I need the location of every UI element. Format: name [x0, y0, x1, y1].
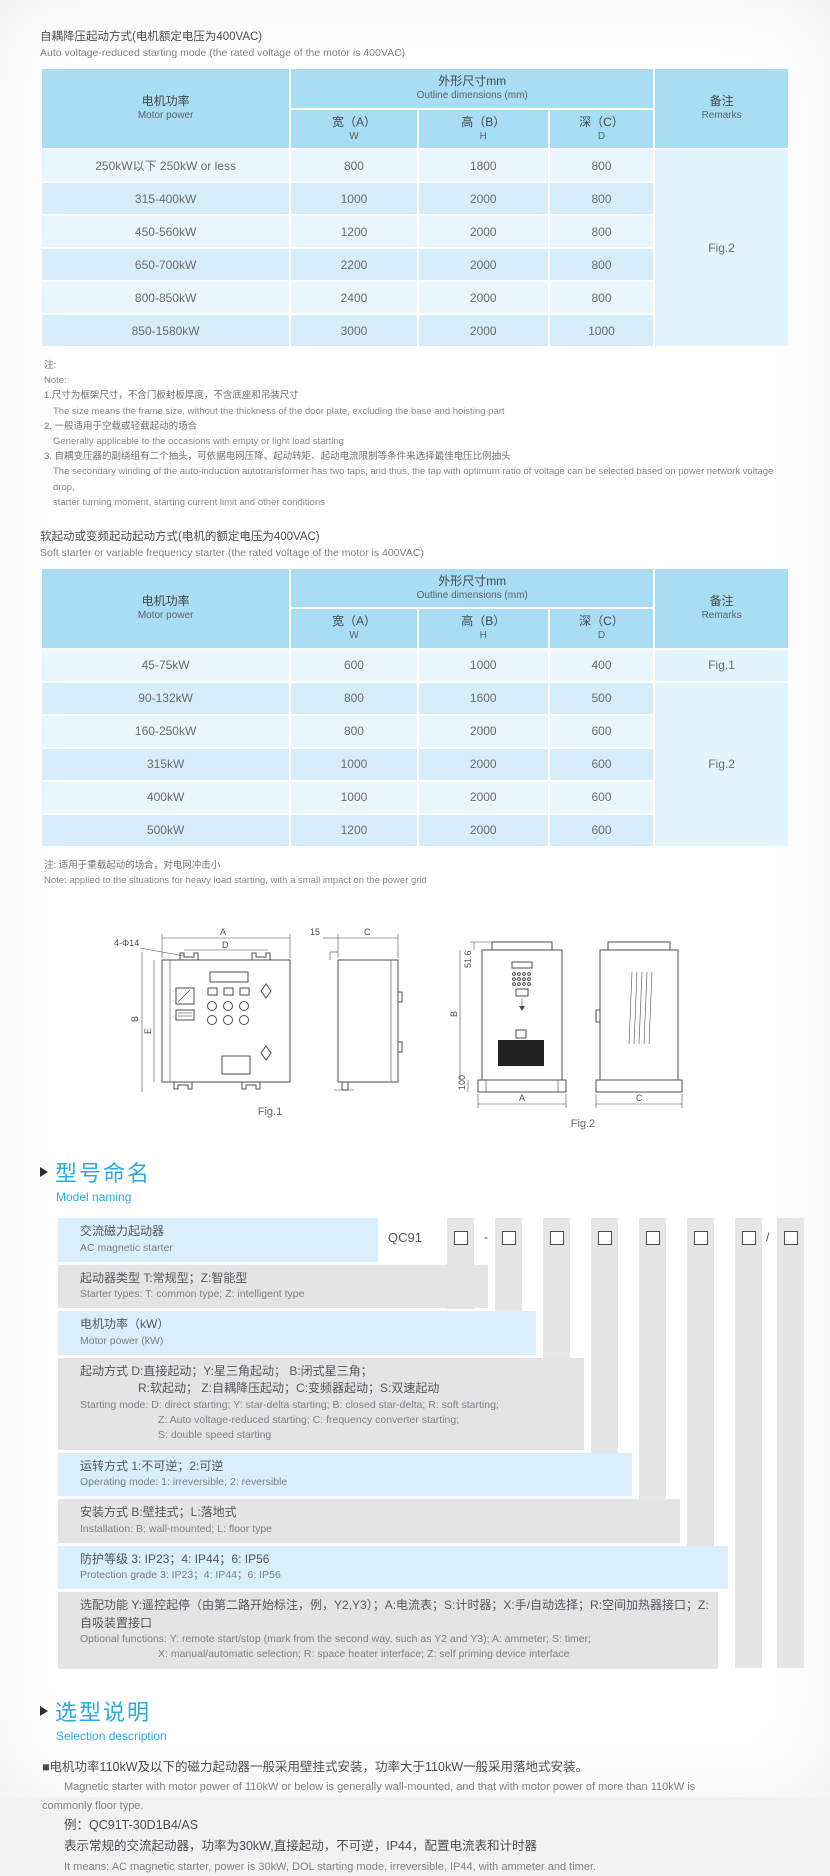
model-code-box — [550, 1231, 564, 1245]
selection-title-zh: 选型说明 — [55, 1695, 151, 1727]
model-naming-table: QC91 - / 交流磁力起动器 AC magnetic starter 起动器… — [58, 1218, 804, 1668]
width-cell: 1200 — [291, 815, 416, 846]
model-row-starter-type: 起动器类型 T:常规型；Z:智能型 Starter types: T: comm… — [58, 1265, 488, 1309]
model-code-strip — [687, 1218, 714, 1589]
selection-paragraph-en: commonly floor type. — [42, 1797, 790, 1816]
power-cell: 500kW — [42, 815, 289, 846]
note-line: The secondary winding of the auto-induct… — [44, 464, 790, 494]
depth-cell: 800 — [550, 216, 653, 247]
power-cell: 650-700kW — [42, 249, 289, 280]
auto-dimensions-table: 电机功率 Motor power 外形尺寸mm Outline dimensio… — [40, 67, 790, 348]
depth-cell: 500 — [550, 683, 653, 714]
depth-header: 深（C） D — [550, 110, 653, 149]
power-cell: 45-75kW — [42, 650, 289, 681]
table-row: 250kW以下 250kW or less 800 1800 800 Fig.2 — [42, 150, 788, 181]
selection-heading: 选型说明 — [40, 1695, 790, 1727]
auto-section-title-zh: 自耦降压起动方式(电机额定电压为400VAC) — [40, 28, 790, 44]
width-cell: 3000 — [291, 315, 416, 346]
model-row-optional-functions: 选配功能 Y:遥控起停（由第二路开始标注，例，Y2,Y3）；A:电流表；S:计时… — [58, 1592, 718, 1668]
model-code-box — [742, 1231, 756, 1245]
width-cell: 800 — [291, 683, 416, 714]
power-cell: 850-1580kW — [42, 315, 289, 346]
depth-cell: 600 — [550, 749, 653, 780]
note-label-zh: 注: — [44, 358, 790, 373]
model-naming-heading: 型号命名 — [40, 1156, 790, 1188]
depth-cell: 600 — [550, 782, 653, 813]
outline-dimensions-header: 外形尺寸mm Outline dimensions (mm) — [291, 69, 653, 108]
height-cell: 2000 — [419, 315, 548, 346]
width-header: 宽（A） W — [291, 110, 416, 149]
height-cell: 2000 — [419, 216, 548, 247]
selection-example-code: 例：QC91T-30D1B4/AS — [42, 1815, 790, 1836]
svg-text:B: B — [130, 1016, 140, 1022]
minus-sign: - — [484, 1230, 488, 1244]
floor-cabinet-drawing: 51.6 B 100 A — [448, 922, 718, 1112]
svg-text:A: A — [220, 927, 226, 937]
height-cell: 1600 — [419, 683, 548, 714]
svg-text:D: D — [222, 940, 229, 950]
model-row-product: 交流磁力起动器 AC magnetic starter — [58, 1218, 378, 1262]
width-cell: 1000 — [291, 183, 416, 214]
wall-mounted-cabinet-drawing: A D 4-Φ14 B E — [110, 922, 430, 1100]
width-cell: 2400 — [291, 282, 416, 313]
selection-paragraph-en: Magnetic starter with motor power of 110… — [42, 1778, 790, 1797]
note-label-en: Note: — [44, 373, 790, 388]
model-code-box — [784, 1231, 798, 1245]
outline-figures: A D 4-Φ14 B E — [110, 922, 790, 1130]
selection-example-en: It means: AC magnetic starter, power is … — [42, 1858, 790, 1876]
table-header-row: 电机功率 Motor power 外形尺寸mm Outline dimensio… — [42, 69, 788, 108]
model-code-box — [454, 1231, 468, 1245]
power-cell: 315kW — [42, 749, 289, 780]
svg-text:C: C — [364, 927, 371, 937]
soft-section-title-en: Soft starter or variable frequency start… — [40, 547, 790, 559]
section-arrow-icon — [40, 1167, 48, 1177]
width-header: 宽（A） W — [291, 609, 416, 648]
note-line: 2. 一般适用于空载或轻载起动的场合 — [44, 419, 790, 434]
model-code-strip — [639, 1218, 666, 1543]
svg-text:100: 100 — [457, 1075, 467, 1090]
selection-paragraph-zh: ■电机功率110kW及以下的磁力起动器一般采用壁挂式安装，功率大于110kW一般… — [42, 1757, 790, 1778]
table-header-row: 电机功率 Motor power 外形尺寸mm Outline dimensio… — [42, 569, 788, 608]
svg-text:E: E — [143, 1028, 153, 1034]
model-code-strip — [777, 1218, 804, 1668]
remark-cell: Fig.2 — [655, 150, 788, 346]
model-code-strip — [735, 1218, 762, 1668]
model-row-motor-power: 电机功率（kW） Motor power (kW) — [58, 1311, 536, 1355]
auto-table-notes: 注: Note: 1.尺寸为框架尺寸，不含门板封板厚度，不含底座和吊装尺寸 Th… — [44, 358, 790, 510]
svg-text:A: A — [519, 1093, 525, 1103]
height-cell: 1800 — [419, 150, 548, 181]
model-code-box — [646, 1231, 660, 1245]
depth-cell: 600 — [550, 815, 653, 846]
height-header: 高（B） H — [419, 110, 548, 149]
depth-cell: 800 — [550, 282, 653, 313]
width-cell: 2200 — [291, 249, 416, 280]
remark-cell: Fig.2 — [655, 683, 788, 846]
svg-text:4-Φ14: 4-Φ14 — [114, 938, 139, 948]
note-line: The size means the frame size, without t… — [44, 404, 790, 419]
note-line: Generally applicable to the occasions wi… — [44, 434, 790, 449]
svg-text:B: B — [449, 1011, 459, 1017]
model-code-box — [502, 1231, 516, 1245]
depth-cell: 800 — [550, 249, 653, 280]
svg-text:15: 15 — [310, 927, 320, 937]
height-cell: 2000 — [419, 282, 548, 313]
power-cell: 250kW以下 250kW or less — [42, 150, 289, 181]
height-cell: 2000 — [419, 815, 548, 846]
height-cell: 2000 — [419, 183, 548, 214]
width-cell: 800 — [291, 150, 416, 181]
height-cell: 2000 — [419, 782, 548, 813]
height-cell: 1000 — [419, 650, 548, 681]
note-line: Note: applied to the situations for heav… — [44, 873, 790, 888]
section-arrow-icon — [40, 1706, 48, 1716]
svg-text:51.6: 51.6 — [463, 951, 473, 969]
width-cell: 1200 — [291, 216, 416, 247]
slash-sign: / — [766, 1230, 769, 1244]
height-header: 高（B） H — [419, 609, 548, 648]
width-cell: 1000 — [291, 782, 416, 813]
selection-title-en: Selection description — [56, 1729, 790, 1743]
depth-header: 深（C） D — [550, 609, 653, 648]
model-row-protection-grade: 防护等级 3: IP23；4: IP44；6: IP56 Protection … — [58, 1546, 728, 1590]
svg-text:C: C — [636, 1093, 643, 1103]
height-cell: 2000 — [419, 249, 548, 280]
soft-section-title-zh: 软起动或变频起动起动方式(电机的额定电压为400VAC) — [40, 528, 790, 544]
soft-table-note: 注: 适用于重载起动的场合，对电网冲击小 Note: applied to th… — [44, 858, 790, 888]
selection-body: ■电机功率110kW及以下的磁力起动器一般采用壁挂式安装，功率大于110kW一般… — [42, 1757, 790, 1876]
figure-1: A D 4-Φ14 B E — [110, 922, 430, 1130]
model-row-starting-mode: 起动方式 D:直接起动；Y:星三角起动； B:闭式星三角； R:软起动； Z:自… — [58, 1358, 584, 1449]
table-row: 45-75kW 600 1000 400 Fig.1 — [42, 650, 788, 681]
height-cell: 2000 — [419, 716, 548, 747]
figure-2: 51.6 B 100 A — [448, 922, 718, 1130]
width-cell: 600 — [291, 650, 416, 681]
height-cell: 2000 — [419, 749, 548, 780]
auto-section-title-en: Auto voltage-reduced starting mode (the … — [40, 47, 790, 59]
power-cell: 315-400kW — [42, 183, 289, 214]
power-cell: 450-560kW — [42, 216, 289, 247]
soft-dimensions-table: 电机功率 Motor power 外形尺寸mm Outline dimensio… — [40, 567, 790, 848]
note-line: starter turning moment, starting current… — [44, 495, 790, 510]
power-cell: 800-850kW — [42, 282, 289, 313]
depth-cell: 800 — [550, 150, 653, 181]
table-row: 90-132kW 800 1600 500 Fig.2 — [42, 683, 788, 714]
remarks-header: 备注 Remarks — [655, 569, 788, 648]
remark-cell: Fig.1 — [655, 650, 788, 681]
depth-cell: 600 — [550, 716, 653, 747]
power-cell: 160-250kW — [42, 716, 289, 747]
depth-cell: 1000 — [550, 315, 653, 346]
depth-cell: 800 — [550, 183, 653, 214]
note-line: 注: 适用于重载起动的场合，对电网冲击小 — [44, 858, 790, 873]
outline-dimensions-header: 外形尺寸mm Outline dimensions (mm) — [291, 569, 653, 608]
figure-1-label: Fig.1 — [110, 1106, 430, 1118]
remarks-header: 备注 Remarks — [655, 69, 788, 148]
note-line: 3. 自耦变压器的副绕组有二个抽头，可依据电网压降、起动转矩、起动电流限制等条件… — [44, 449, 790, 464]
depth-cell: 400 — [550, 650, 653, 681]
motor-power-header: 电机功率 Motor power — [42, 569, 289, 648]
model-code-box — [598, 1231, 612, 1245]
catalog-page: 自耦降压起动方式(电机额定电压为400VAC) Auto voltage-red… — [0, 0, 830, 1797]
model-naming-title-zh: 型号命名 — [55, 1156, 151, 1188]
power-cell: 400kW — [42, 782, 289, 813]
power-cell: 90-132kW — [42, 683, 289, 714]
selection-example-zh: 表示常规的交流起动器，功率为30kW,直接起动，不可逆，IP44，配置电流表和计… — [42, 1836, 790, 1857]
model-code-prefix: QC91 — [388, 1230, 422, 1245]
model-row-operating-mode: 运转方式 1:不可逆；2:可逆 Operating mode: 1: irrev… — [58, 1453, 632, 1497]
model-row-installation: 安装方式 B:壁挂式；L:落地式 Installation: B: wall-m… — [58, 1499, 680, 1543]
note-line: 1.尺寸为框架尺寸，不含门板封板厚度，不含底座和吊装尺寸 — [44, 388, 790, 403]
width-cell: 1000 — [291, 749, 416, 780]
width-cell: 800 — [291, 716, 416, 747]
figure-2-label: Fig.2 — [448, 1118, 718, 1130]
model-code-box — [694, 1231, 708, 1245]
model-naming-title-en: Model naming — [56, 1190, 790, 1204]
motor-power-header: 电机功率 Motor power — [42, 69, 289, 148]
